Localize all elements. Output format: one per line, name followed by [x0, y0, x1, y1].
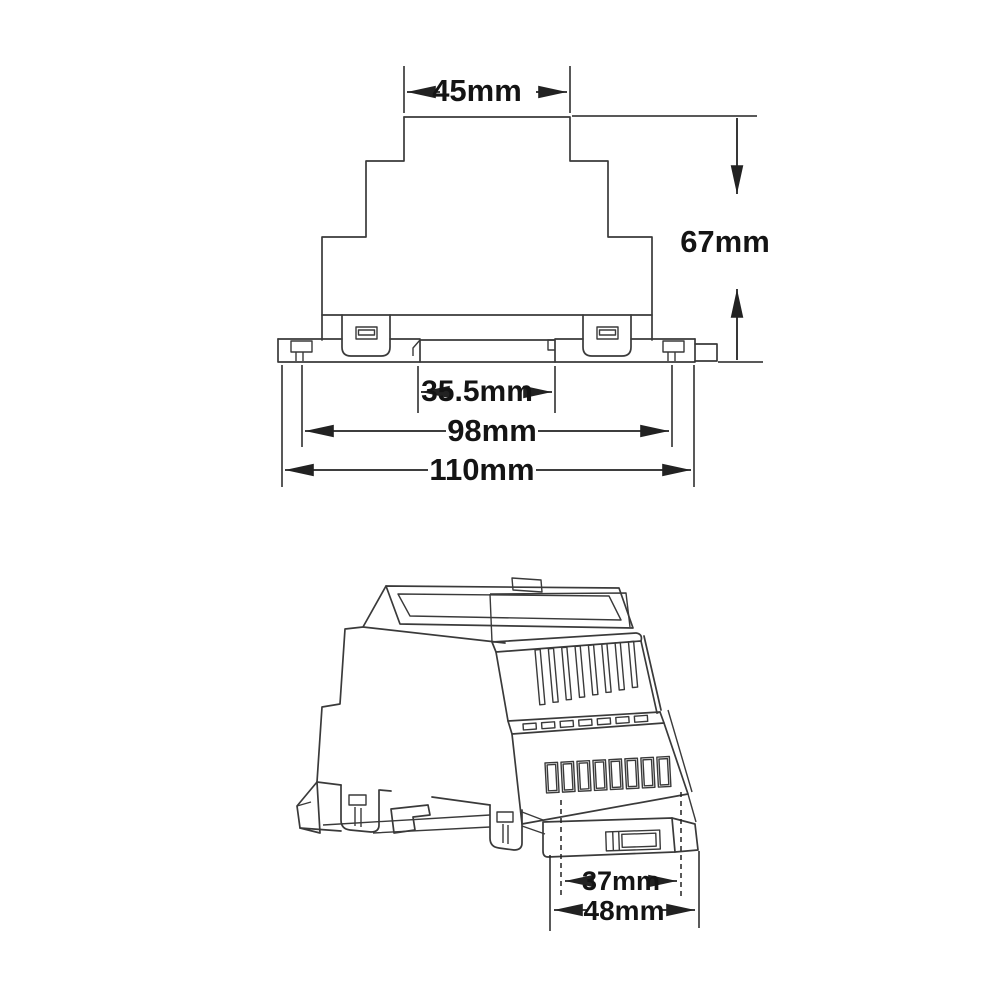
iso-right-foot: [490, 805, 522, 850]
iso-top-notch: [512, 578, 542, 592]
iso-vent-panel: [492, 633, 661, 721]
vent-slots: [535, 641, 638, 704]
iso-left-flange: [297, 782, 320, 833]
dim-height: 67mm: [572, 116, 770, 362]
dim-label-mount-width: 98mm: [447, 413, 537, 448]
right-release-tab: [695, 344, 717, 361]
terminal-top-slots: [523, 715, 648, 730]
isometric-view: 37mm 48mm: [297, 578, 699, 931]
iso-base: [543, 794, 698, 857]
dim-label-top-width: 45mm: [432, 73, 522, 108]
dim-label-overall-width: 110mm: [429, 452, 534, 487]
iso-top-rim: [386, 578, 633, 628]
terminal-holes: [545, 756, 671, 792]
din-module-dimension-drawing: 45mm 67mm 35.5mm 98mm: [0, 0, 1000, 1000]
dim-top-width: 45mm: [404, 66, 570, 113]
din-rail-channel: [413, 340, 555, 362]
dim-label-height: 67mm: [680, 224, 770, 259]
iso-bottom-din-area: [297, 782, 545, 850]
dim-label-rail-channel-width: 35.5mm: [421, 375, 533, 408]
front-elevation-view: 45mm 67mm 35.5mm 98mm: [278, 66, 770, 487]
left-din-clip: [291, 341, 312, 361]
technical-drawing-page: 45mm 67mm 35.5mm 98mm: [0, 0, 1000, 1000]
dim-label-overall-depth: 48mm: [584, 895, 665, 926]
iso-left-foot: [341, 785, 379, 832]
dim-rail-depth: 37mm: [561, 792, 681, 898]
right-din-clip: [663, 341, 684, 361]
dim-rail-channel-width: 35.5mm: [418, 366, 555, 413]
iso-terminal-block: [508, 710, 692, 824]
left-mounting-foot: [342, 315, 390, 356]
front-body-outline: [322, 117, 652, 340]
dim-label-rail-depth: 37mm: [582, 866, 660, 896]
right-mounting-foot: [583, 315, 631, 356]
iso-slide-latch: [606, 830, 661, 851]
